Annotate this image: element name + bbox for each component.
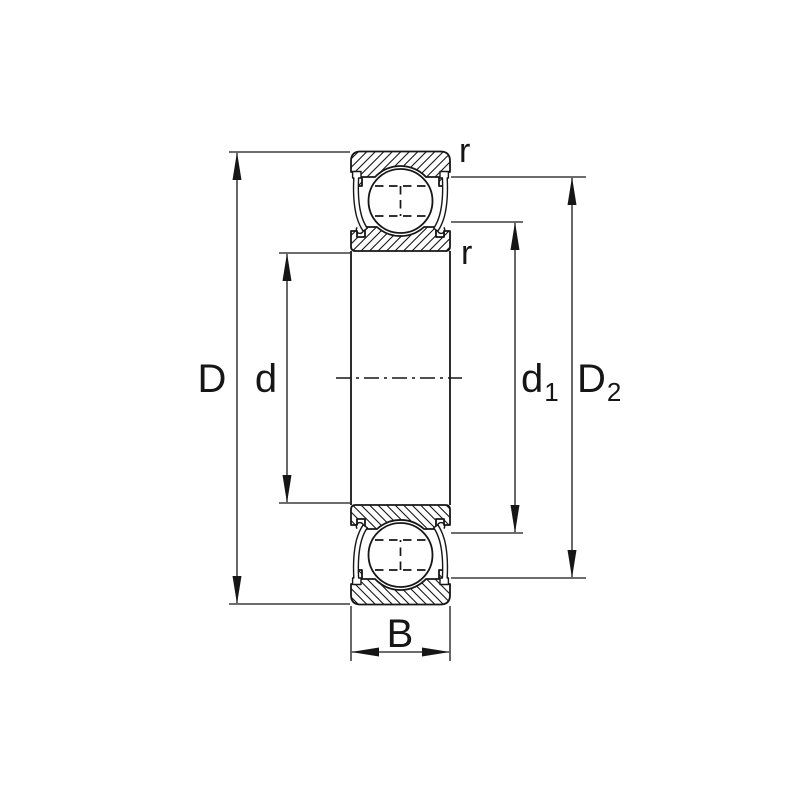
- arrowhead-down: [568, 550, 577, 578]
- label-r-outer: r: [459, 132, 470, 170]
- arrowhead-left: [351, 648, 379, 657]
- label-r-inner: r: [461, 234, 472, 272]
- arrowhead-down: [511, 505, 520, 533]
- label-d: d: [255, 357, 277, 401]
- arrowhead-up: [233, 152, 242, 180]
- dimension-d: d: [255, 253, 350, 503]
- label-B: B: [387, 612, 414, 656]
- diagram-canvas: D d d1 D2 B r r: [0, 0, 800, 800]
- arrowhead-up: [568, 177, 577, 205]
- arrowhead-up: [511, 222, 520, 250]
- arrowhead-down: [233, 576, 242, 604]
- arrowhead-up: [283, 253, 292, 281]
- bearing-dimension-diagram: D d d1 D2 B r r: [0, 0, 800, 800]
- bearing-top-section: [351, 152, 450, 252]
- arrowhead-right: [422, 648, 450, 657]
- arrowhead-down: [283, 475, 292, 503]
- bearing-bottom-section: [351, 505, 450, 605]
- label-d1: d1: [521, 357, 559, 407]
- label-D: D: [198, 357, 227, 401]
- label-D2: D2: [577, 357, 621, 407]
- bearing-body: [336, 152, 462, 605]
- dimension-B: B: [351, 606, 450, 661]
